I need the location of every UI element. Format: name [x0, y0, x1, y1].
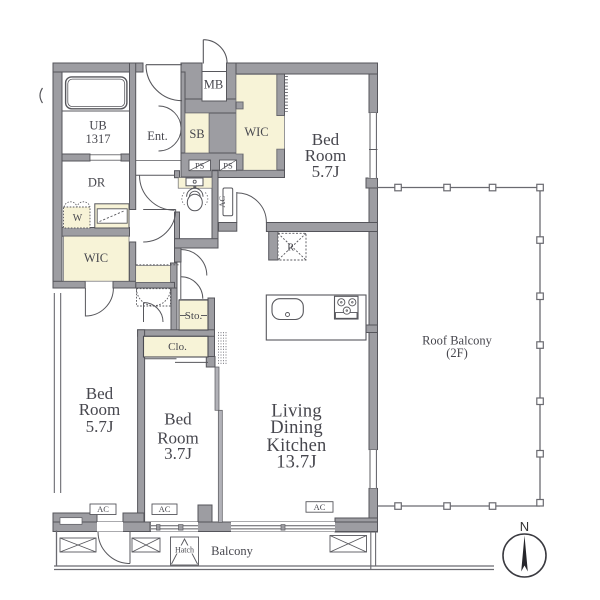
svg-text:Bed: Bed [164, 410, 192, 429]
svg-text:Ent.: Ent. [147, 129, 167, 143]
svg-text:WIC: WIC [244, 125, 268, 139]
svg-text:PS: PS [223, 160, 233, 170]
svg-text:5.7J: 5.7J [312, 162, 340, 181]
svg-text:SB: SB [189, 127, 204, 141]
svg-text:WIC: WIC [84, 251, 108, 265]
svg-text:R: R [287, 242, 294, 253]
svg-text:Hatch: Hatch [175, 546, 194, 555]
svg-text:AC: AC [159, 504, 171, 514]
svg-text:Clo.: Clo. [168, 341, 187, 353]
svg-text:Balcony: Balcony [211, 544, 253, 558]
svg-text:DR: DR [88, 176, 106, 190]
svg-text:AC: AC [97, 504, 109, 514]
svg-text:PS: PS [195, 160, 205, 170]
svg-text:1317: 1317 [86, 132, 111, 146]
svg-text:MB: MB [204, 77, 223, 91]
svg-text:(2F): (2F) [446, 346, 468, 360]
svg-text:5.7J: 5.7J [86, 417, 114, 436]
svg-text:AC: AC [217, 196, 227, 208]
svg-text:Sto.: Sto. [185, 310, 203, 322]
svg-text:AC: AC [314, 502, 326, 512]
svg-text:UB: UB [89, 119, 106, 133]
svg-text:N: N [520, 519, 529, 534]
svg-text:13.7J: 13.7J [276, 453, 317, 473]
svg-text:3.7J: 3.7J [164, 444, 192, 463]
svg-text:W: W [73, 213, 83, 224]
